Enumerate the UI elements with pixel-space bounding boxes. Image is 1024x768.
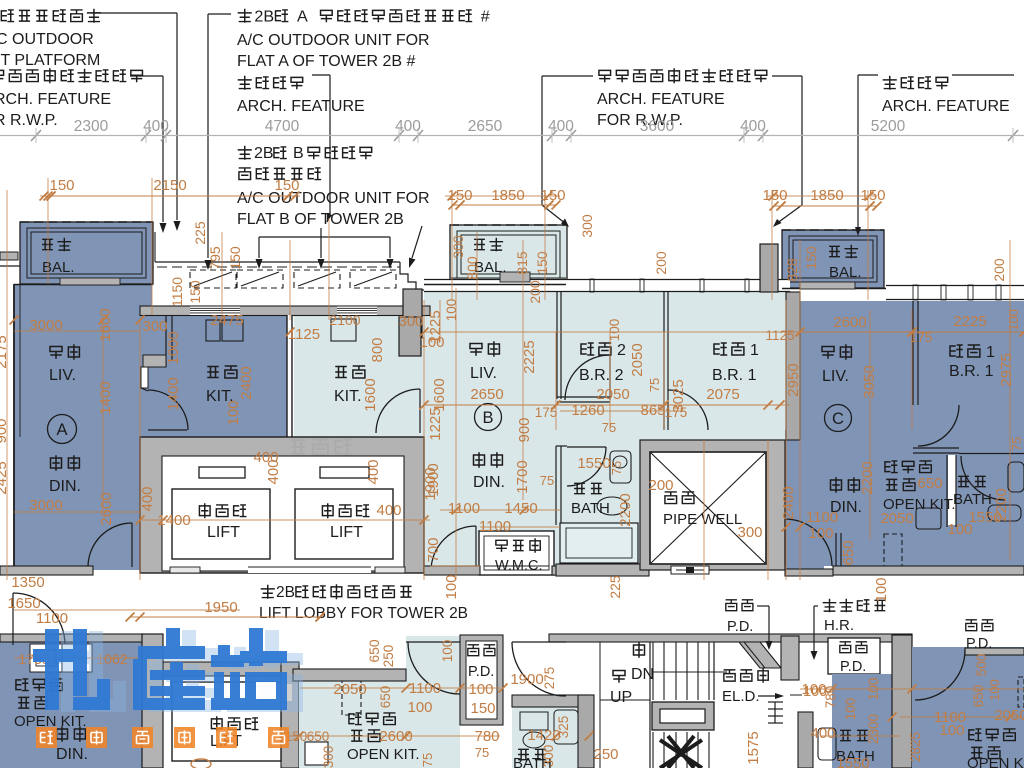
svg-text:A: A (56, 421, 67, 439)
svg-text:150: 150 (803, 246, 819, 270)
svg-text:1: 1 (750, 342, 759, 359)
svg-text:C OUTDOOR: C OUTDOOR (0, 31, 94, 48)
svg-text:300: 300 (142, 318, 167, 335)
svg-text:P.D.: P.D. (727, 619, 753, 635)
svg-text:1600: 1600 (362, 378, 379, 411)
svg-text:250: 250 (381, 645, 396, 668)
svg-text:2825: 2825 (908, 732, 923, 762)
svg-text:2600: 2600 (98, 492, 115, 525)
svg-text:P.D.: P.D. (840, 659, 866, 675)
svg-text:650: 650 (917, 475, 942, 492)
svg-text:865: 865 (640, 402, 665, 419)
svg-text:1: 1 (986, 344, 995, 361)
svg-text:2175: 2175 (0, 335, 10, 368)
svg-text:2050: 2050 (880, 510, 913, 527)
svg-text:P.D.: P.D. (966, 636, 992, 652)
svg-text:1125: 1125 (765, 328, 794, 343)
svg-text:200: 200 (648, 477, 673, 494)
svg-text:1100: 1100 (36, 610, 68, 627)
svg-text:300: 300 (450, 235, 466, 259)
svg-text:100: 100 (843, 698, 858, 721)
svg-text:1450: 1450 (504, 500, 537, 517)
svg-text:2050: 2050 (994, 707, 1024, 724)
svg-text:DIN.: DIN. (56, 746, 88, 763)
svg-text:828: 828 (784, 258, 800, 282)
svg-text:2200: 2200 (993, 488, 1010, 521)
svg-text:1400: 1400 (97, 381, 114, 414)
svg-text:225: 225 (192, 221, 208, 245)
svg-text:100: 100 (407, 699, 432, 716)
svg-text:3000: 3000 (29, 497, 62, 514)
svg-text:400: 400 (740, 118, 766, 135)
svg-text:100: 100 (947, 521, 972, 538)
svg-text:BATH: BATH (571, 500, 610, 517)
svg-text:OPEN KI: OPEN KI (967, 755, 1024, 768)
svg-text:400: 400 (365, 459, 382, 484)
svg-text:LIFT: LIFT (330, 524, 363, 541)
svg-text:150: 150 (540, 187, 565, 204)
svg-text:2400: 2400 (238, 366, 255, 399)
svg-text:2050: 2050 (333, 681, 366, 698)
svg-text:2200: 2200 (617, 493, 634, 526)
svg-text:100: 100 (444, 299, 459, 322)
svg-text:B.R. 1: B.R. 1 (949, 363, 994, 380)
svg-text:ARCH. FEATURE: ARCH. FEATURE (237, 98, 365, 115)
svg-text:100: 100 (808, 525, 833, 542)
svg-text:2B: 2B (254, 145, 274, 162)
svg-text:200: 200 (527, 280, 543, 304)
svg-text:LIV.: LIV. (470, 365, 497, 382)
svg-text:300: 300 (541, 745, 556, 768)
svg-text:150: 150 (762, 187, 787, 204)
svg-text:1400: 1400 (165, 377, 182, 410)
svg-text:2150: 2150 (153, 177, 186, 194)
svg-text:275: 275 (542, 667, 557, 690)
svg-text:650: 650 (366, 639, 382, 663)
svg-text:2050: 2050 (629, 343, 646, 376)
svg-text:150: 150 (227, 246, 243, 270)
svg-text:4700: 4700 (265, 118, 300, 135)
svg-text:250: 250 (593, 746, 618, 763)
svg-text:100: 100 (987, 679, 1002, 701)
svg-text:2600: 2600 (833, 314, 866, 331)
svg-text:2: 2 (617, 342, 626, 359)
svg-text:400: 400 (139, 486, 156, 511)
svg-text:3600: 3600 (640, 118, 675, 135)
svg-text:2200: 2200 (859, 461, 876, 494)
svg-text:100: 100 (443, 574, 460, 599)
svg-text:H.R.: H.R. (824, 617, 854, 634)
svg-text:400: 400 (376, 502, 401, 519)
svg-text:FLAT B OF TOWER 2B: FLAT B OF TOWER 2B (237, 211, 404, 228)
svg-text:75: 75 (647, 378, 662, 392)
svg-text:780: 780 (474, 728, 499, 745)
svg-text:780: 780 (823, 686, 838, 709)
svg-text:PIPE WELL: PIPE WELL (663, 511, 742, 528)
svg-text:75: 75 (602, 420, 616, 435)
svg-text:100: 100 (939, 722, 964, 739)
svg-text:UP: UP (610, 689, 632, 706)
svg-text:1550: 1550 (836, 755, 869, 768)
svg-text:75: 75 (540, 473, 554, 488)
svg-text:300: 300 (579, 214, 595, 238)
svg-text:2100: 2100 (329, 312, 360, 328)
svg-text:ARCH. FEATURE: ARCH. FEATURE (597, 91, 725, 108)
svg-text:75: 75 (475, 745, 489, 760)
svg-text:1225: 1225 (427, 310, 444, 343)
svg-text:650: 650 (971, 685, 986, 708)
svg-text:100: 100 (468, 681, 493, 698)
svg-text:A/C OUTDOOR UNIT FOR: A/C OUTDOOR UNIT FOR (237, 190, 430, 207)
svg-text:800: 800 (369, 337, 386, 362)
svg-text:RCH. FEATURE: RCH. FEATURE (0, 91, 111, 108)
svg-text:100: 100 (866, 678, 881, 701)
svg-text:1100: 1100 (409, 680, 441, 697)
svg-text:1100: 1100 (479, 518, 511, 535)
svg-text:100: 100 (1006, 309, 1021, 331)
svg-text:A/C OUTDOOR UNIT FOR: A/C OUTDOOR UNIT FOR (237, 32, 430, 49)
svg-text:400: 400 (810, 725, 835, 742)
svg-text:150: 150 (49, 177, 74, 194)
svg-text:300: 300 (737, 524, 762, 541)
svg-text:900: 900 (0, 418, 10, 443)
svg-text:3000: 3000 (29, 317, 62, 334)
svg-text:LIV.: LIV. (49, 367, 76, 384)
svg-text:1000: 1000 (165, 331, 182, 364)
svg-text:EL.D.: EL.D. (722, 688, 760, 705)
svg-text:1700: 1700 (514, 460, 531, 493)
svg-text:2400: 2400 (780, 486, 797, 519)
svg-text:IT PLATFORM: IT PLATFORM (0, 52, 100, 69)
svg-text:DN: DN (631, 666, 654, 683)
svg-text:2975: 2975 (998, 353, 1015, 386)
svg-text:1950: 1950 (204, 599, 237, 616)
svg-text:BAL.: BAL. (829, 264, 862, 281)
svg-text:100: 100 (607, 319, 622, 342)
svg-text:1350: 1350 (11, 574, 44, 591)
svg-text:OPEN KIT.: OPEN KIT. (347, 746, 420, 763)
svg-text:1260: 1260 (571, 402, 604, 419)
svg-text:1850: 1850 (491, 187, 524, 204)
svg-text:795: 795 (207, 246, 223, 270)
svg-text:1600: 1600 (97, 308, 114, 341)
svg-text:BATH: BATH (953, 491, 992, 508)
svg-text:1600: 1600 (431, 378, 448, 411)
svg-text:2225: 2225 (953, 313, 986, 330)
svg-text:R R.W.P.: R R.W.P. (0, 112, 58, 129)
svg-text:400: 400 (395, 118, 421, 135)
svg-text:400: 400 (143, 118, 169, 135)
svg-text:75: 75 (609, 461, 624, 475)
svg-text:KIT.: KIT. (334, 388, 362, 405)
svg-text:75: 75 (420, 753, 435, 767)
svg-text:150: 150 (470, 700, 495, 717)
svg-text:2650: 2650 (470, 386, 503, 403)
svg-text:175: 175 (910, 330, 933, 345)
svg-text:2425: 2425 (0, 461, 10, 494)
svg-text:2300: 2300 (866, 714, 881, 744)
svg-text:5200: 5200 (871, 118, 906, 135)
svg-text:B.R. 2: B.R. 2 (579, 367, 624, 384)
svg-text:DIN.: DIN. (49, 478, 81, 495)
svg-text:1900: 1900 (422, 467, 439, 500)
svg-text:75: 75 (1009, 437, 1024, 451)
svg-text:650: 650 (840, 540, 857, 565)
svg-text:100: 100 (873, 577, 890, 602)
svg-text:200: 200 (653, 251, 669, 275)
svg-text:150: 150 (860, 187, 885, 204)
svg-text:650: 650 (307, 729, 330, 744)
svg-text:DIN.: DIN. (473, 474, 505, 491)
svg-text:650: 650 (378, 686, 393, 709)
svg-text:B: B (482, 409, 493, 427)
svg-text:225: 225 (607, 575, 623, 599)
svg-text:B: B (293, 145, 304, 162)
svg-text:LIV.: LIV. (822, 368, 849, 385)
svg-text:1150: 1150 (169, 277, 185, 307)
svg-text:2300: 2300 (74, 118, 109, 135)
svg-text:900: 900 (516, 417, 533, 442)
svg-text:2475: 2475 (210, 312, 243, 329)
svg-text:B.R. 1: B.R. 1 (712, 367, 757, 384)
svg-text:400: 400 (265, 459, 282, 484)
svg-text:815: 815 (514, 251, 530, 275)
svg-text:BAL.: BAL. (42, 259, 75, 276)
svg-text:700: 700 (425, 537, 442, 562)
svg-text:100: 100 (440, 640, 455, 663)
svg-text:2950: 2950 (785, 363, 802, 396)
svg-text:1225: 1225 (427, 407, 444, 440)
svg-text:LIFT LOBBY FOR TOWER 2B: LIFT LOBBY FOR TOWER 2B (259, 605, 468, 622)
svg-text:400: 400 (548, 118, 574, 135)
svg-text:100: 100 (225, 400, 242, 425)
svg-text:ARCH. FEATURE: ARCH. FEATURE (882, 98, 1010, 115)
svg-text:A: A (297, 7, 308, 25)
svg-text:2650: 2650 (468, 118, 503, 135)
svg-text:#: # (481, 7, 490, 25)
svg-text:2B: 2B (276, 584, 295, 601)
svg-text:300: 300 (321, 746, 336, 768)
svg-text:C: C (832, 410, 844, 428)
svg-text:1550: 1550 (577, 455, 610, 472)
svg-text:1850: 1850 (810, 187, 843, 204)
svg-text:P.D.: P.D. (468, 664, 494, 680)
svg-text:2075: 2075 (706, 386, 739, 403)
svg-text:300: 300 (398, 313, 423, 330)
svg-text:LIFT: LIFT (207, 524, 240, 541)
svg-text:200: 200 (991, 258, 1007, 282)
svg-text:1100: 1100 (806, 509, 838, 526)
svg-text:150: 150 (274, 177, 299, 194)
svg-text:150: 150 (534, 251, 550, 275)
svg-text:500: 500 (974, 654, 989, 677)
svg-text:2050: 2050 (596, 386, 629, 403)
svg-text:175: 175 (665, 405, 688, 420)
svg-text:2600: 2600 (379, 728, 412, 745)
svg-text:150: 150 (187, 280, 203, 304)
svg-text:2B: 2B (254, 7, 274, 25)
svg-text:1575: 1575 (745, 731, 762, 764)
svg-text:800: 800 (464, 256, 480, 280)
svg-text:FLAT A OF TOWER 2B #: FLAT A OF TOWER 2B # (237, 53, 416, 70)
svg-text:3050: 3050 (861, 365, 878, 398)
svg-text:2225: 2225 (521, 340, 538, 373)
svg-text:W.M.C.: W.M.C. (495, 558, 543, 574)
svg-text:1900: 1900 (510, 671, 543, 688)
